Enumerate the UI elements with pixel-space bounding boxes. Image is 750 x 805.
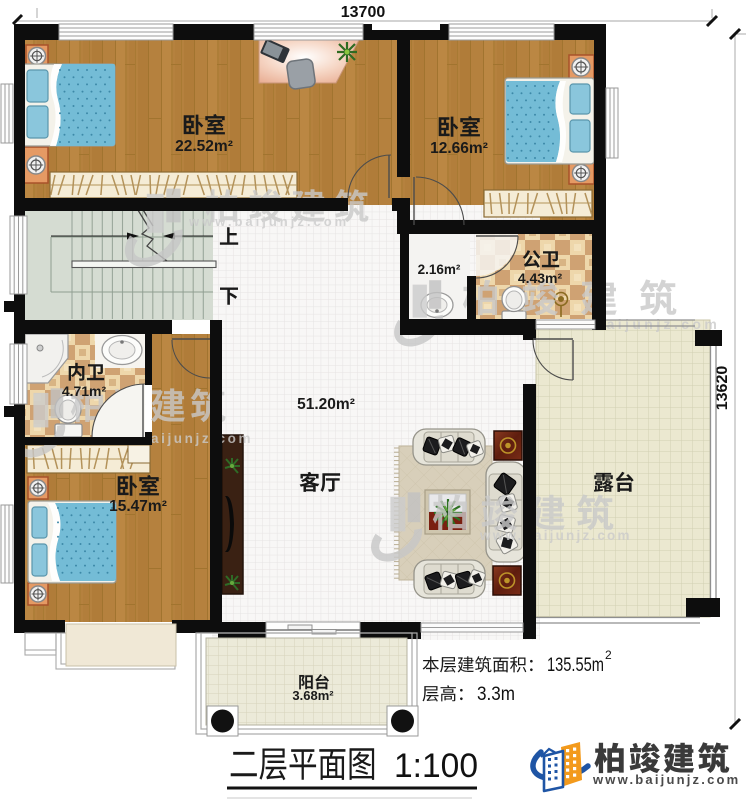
- svg-text:2.16m²: 2.16m²: [418, 262, 461, 277]
- svg-text:4.71m²: 4.71m²: [62, 383, 107, 399]
- svg-text:www.baijunjz.com: www.baijunjz.com: [592, 772, 740, 787]
- svg-text:135.55m: 135.55m: [547, 655, 604, 676]
- svg-text:13700: 13700: [341, 4, 386, 21]
- svg-text:4.43m²: 4.43m²: [518, 270, 563, 286]
- svg-text:3.3m: 3.3m: [477, 684, 515, 705]
- svg-text:www.baijunjz.com: www.baijunjz.com: [479, 528, 632, 543]
- svg-text:15.47m²: 15.47m²: [109, 498, 167, 515]
- svg-text:3.68m²: 3.68m²: [292, 688, 334, 703]
- svg-text:51.20m²: 51.20m²: [297, 396, 355, 413]
- svg-text:1:100: 1:100: [394, 747, 478, 785]
- svg-text:12.66m²: 12.66m²: [430, 140, 488, 157]
- svg-text:www.baijunjz.com: www.baijunjz.com: [188, 214, 349, 229]
- svg-text:2: 2: [605, 648, 612, 662]
- svg-text:22.52m²: 22.52m²: [175, 138, 233, 155]
